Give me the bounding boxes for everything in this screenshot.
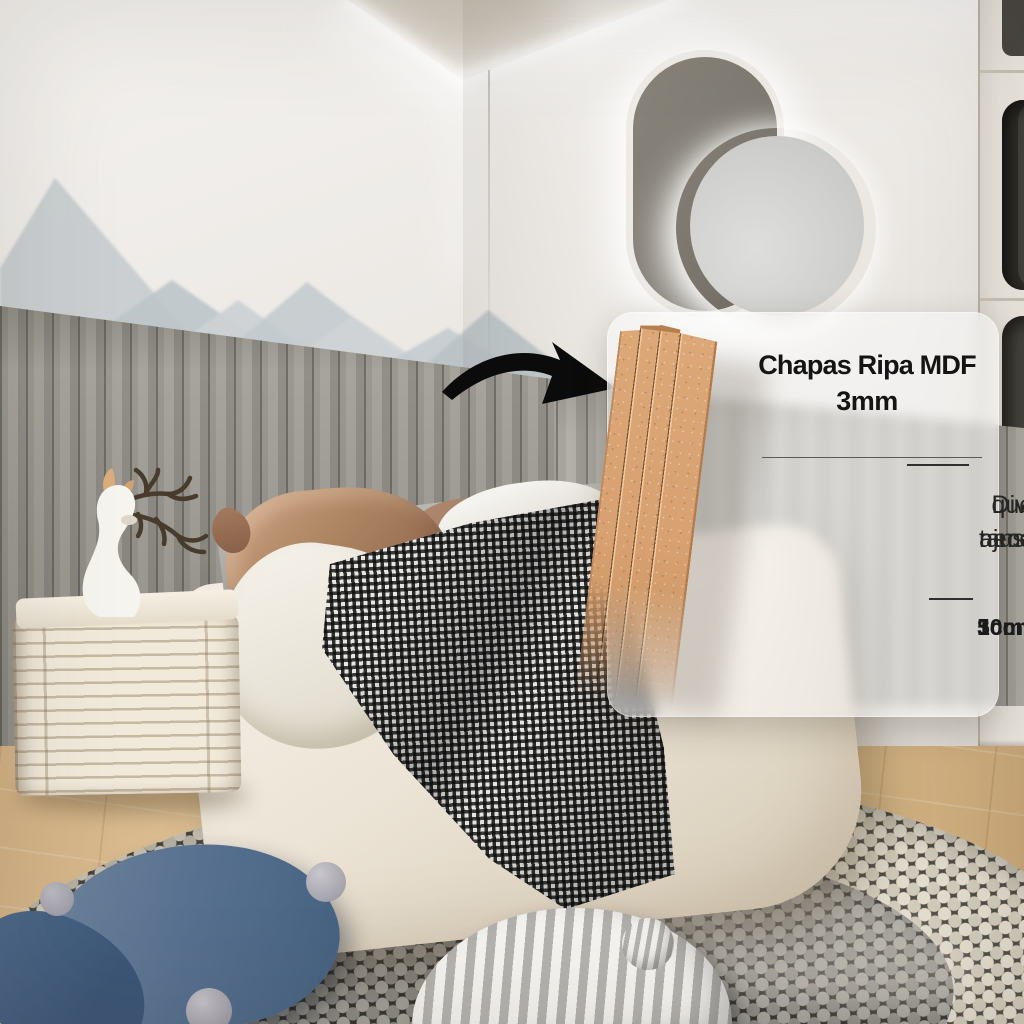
- led-wall-wash: [560, 0, 1024, 30]
- product-ad-image: Chapas Ripa MDF 3mm Diversos tamanhos qu…: [0, 0, 1024, 1024]
- wardrobe-frame-line: [980, 70, 1024, 73]
- curved-arrow-icon: [438, 330, 623, 410]
- wardrobe-frame-line: [980, 298, 1024, 301]
- deer-figurine: [50, 462, 230, 622]
- striped-pom-ball: [622, 918, 674, 970]
- wardrobe-oval-opening: [1002, 100, 1024, 290]
- pom-ball: [40, 882, 74, 916]
- divider-accent-small: [929, 598, 973, 600]
- card-title-block: Chapas Ripa MDF 3mm: [747, 350, 987, 417]
- round-wall-disc: [690, 136, 864, 316]
- ribbed-nightstand: [12, 614, 241, 796]
- product-info-card: Chapas Ripa MDF 3mm Diversos tamanhos qu…: [607, 312, 999, 717]
- size-option: 10cm: [977, 616, 1024, 639]
- divider-accent: [907, 464, 969, 466]
- wardrobe-niche-opening: [1002, 0, 1024, 56]
- pom-ball: [306, 862, 346, 902]
- product-title: Chapas Ripa MDF: [747, 350, 987, 381]
- product-thickness: 3mm: [747, 386, 987, 417]
- divider-line: [762, 457, 982, 458]
- description-line: sua necessidade: [979, 488, 1024, 556]
